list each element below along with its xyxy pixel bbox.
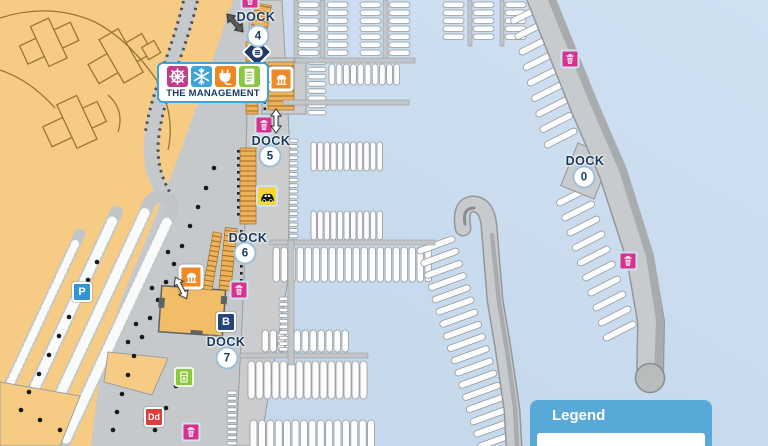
badge-letter: Dd bbox=[148, 413, 160, 422]
map-markers: BPDdDOCK4DOCK5DOCK6DOCK7DOCK0 bbox=[0, 0, 768, 446]
dd-badge: Dd bbox=[144, 407, 164, 427]
legend-box: Legend bbox=[529, 399, 713, 446]
badge-letter: P bbox=[78, 287, 85, 298]
trash-icon bbox=[619, 252, 638, 271]
parking-badge: P bbox=[72, 282, 92, 302]
document-icon bbox=[239, 66, 260, 87]
dock-7-number-badge: 7 bbox=[216, 347, 239, 370]
dock-6-number-badge: 6 bbox=[234, 242, 257, 265]
dock-4-label: DOCK bbox=[237, 10, 276, 24]
trash-icon bbox=[561, 50, 580, 69]
trash-icon bbox=[182, 423, 201, 442]
dock-number: 5 bbox=[267, 150, 273, 162]
dock-number: 0 bbox=[581, 171, 587, 183]
management-icons bbox=[167, 66, 260, 87]
trash-icon bbox=[241, 0, 260, 10]
two-way-arrow-icon bbox=[270, 108, 282, 134]
dock-5-number-badge: 5 bbox=[259, 145, 282, 168]
legend-title: Legend bbox=[529, 399, 713, 424]
helm-icon bbox=[167, 66, 188, 87]
management-label: THE MANAGEMENT bbox=[166, 88, 260, 99]
badge-letter: B bbox=[222, 317, 230, 328]
vending-machine-icon bbox=[174, 367, 194, 387]
dock-number: 6 bbox=[242, 247, 248, 259]
dock-number: 4 bbox=[255, 30, 261, 42]
dock-0-number-badge: 0 bbox=[573, 166, 596, 189]
marina-map: BPDdDOCK4DOCK5DOCK6DOCK7DOCK0 THE MANAGE… bbox=[0, 0, 768, 446]
boat-launch-badge: B bbox=[216, 312, 236, 332]
trash-icon bbox=[230, 281, 249, 300]
power-plug-icon bbox=[215, 66, 236, 87]
dock-number: 7 bbox=[224, 352, 230, 364]
taxi-icon bbox=[256, 185, 278, 207]
legend-body bbox=[537, 433, 705, 446]
snowflake-icon bbox=[191, 66, 212, 87]
dock-4-number-badge: 4 bbox=[247, 25, 270, 48]
management-callout: THE MANAGEMENT bbox=[157, 62, 269, 103]
